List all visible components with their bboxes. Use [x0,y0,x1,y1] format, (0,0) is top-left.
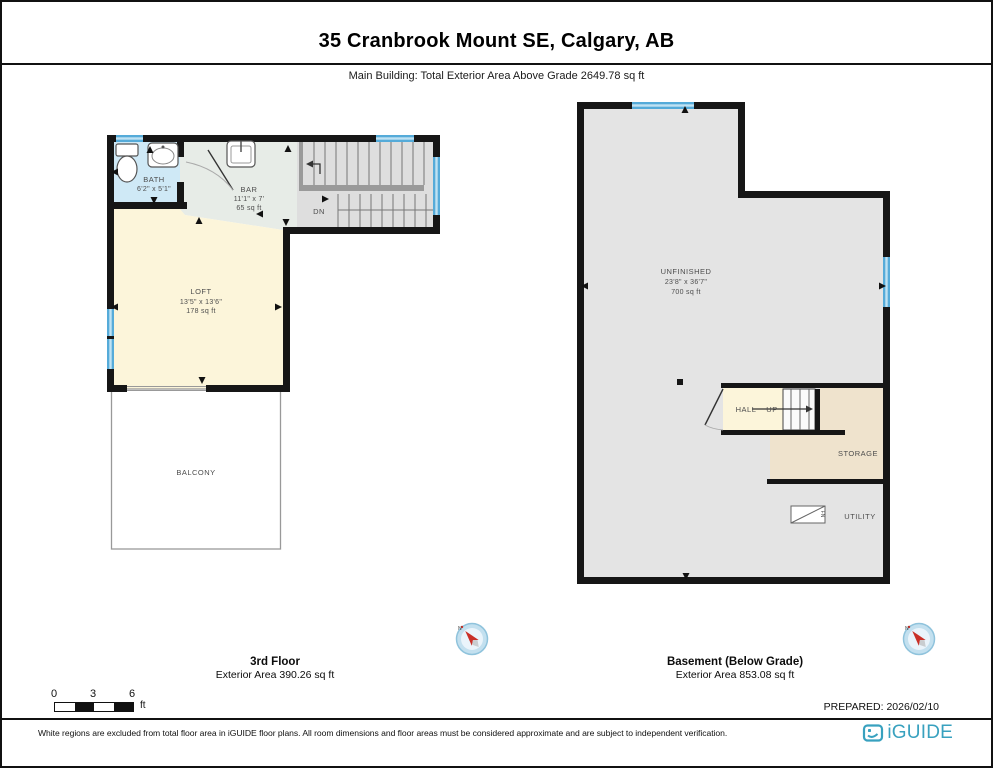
third-floor-area: Exterior Area 390.26 sq ft [125,669,425,681]
hall-up-label: UP [766,405,777,414]
loft-label: LOFT [190,287,211,296]
bar-label: BAR [241,185,258,194]
disclaimer-text: White regions are excluded from total fl… [38,728,727,738]
unfinished-dims: 23'8" x 36'7" [665,279,708,286]
plan-3rd-floor: BATH 6'2" x 5'1" BAR 11'1" x 7' 65 sq ft… [107,135,440,549]
unfinished-label: UNFINISHED [661,267,712,276]
scale-tick-0: 0 [48,688,60,700]
compass-basement [904,624,935,655]
third-floor-name: 3rd Floor [125,656,425,668]
bar-dims: 11'1" x 7' [234,196,265,203]
bar-area: 65 sq ft [236,205,261,212]
basement-caption: Basement (Below Grade) Exterior Area 853… [585,656,885,681]
scale-unit: ft [140,700,146,711]
iguide-logo: iGUIDE [862,722,953,744]
third-floor-caption: 3rd Floor Exterior Area 390.26 sq ft [125,656,425,681]
basement-name: Basement (Below Grade) [585,656,885,668]
scale-tick-3: 3 [87,688,99,700]
scale-tick-6: 6 [126,688,138,700]
bath-label: BATH [143,175,164,184]
stairs-dn-label: DN [313,207,325,216]
iguide-logo-text: iGUIDE [887,722,953,744]
iguide-logo-icon [862,723,884,743]
plan-basement: FN UNFINISHED 23'8" x 36'7" 700 sq ft HA… [577,102,890,584]
prepared-date: PREPARED: 2026/02/10 [824,701,939,713]
scale-bar: 0 3 6 ft [42,688,172,718]
toilet-icon [116,144,138,182]
compass-3rd-floor [457,624,488,655]
hall-label: HALL [736,405,757,414]
balcony-label: BALCONY [176,468,215,477]
bath-dims: 6'2" x 5'1" [137,186,171,193]
furnace-icon: FN [791,506,825,523]
unfinished-area: 700 sq ft [671,289,701,296]
storage-label: STORAGE [838,449,878,458]
basement-area: Exterior Area 853.08 sq ft [585,669,885,681]
sink-icon [148,143,178,167]
scale-bar-segments [54,702,134,712]
footer-divider [2,718,991,720]
loft-area: 178 sq ft [186,308,216,315]
unfinished-floor [580,105,887,581]
furnace-label: FN [819,511,825,518]
floorplan-canvas: N [2,2,993,768]
loft-dims: 13'5" x 13'6" [180,299,223,306]
floorplan-page: 35 Cranbrook Mount SE, Calgary, AB Main … [0,0,993,768]
bar-sink-icon [227,141,255,167]
utility-label: UTILITY [844,512,875,521]
